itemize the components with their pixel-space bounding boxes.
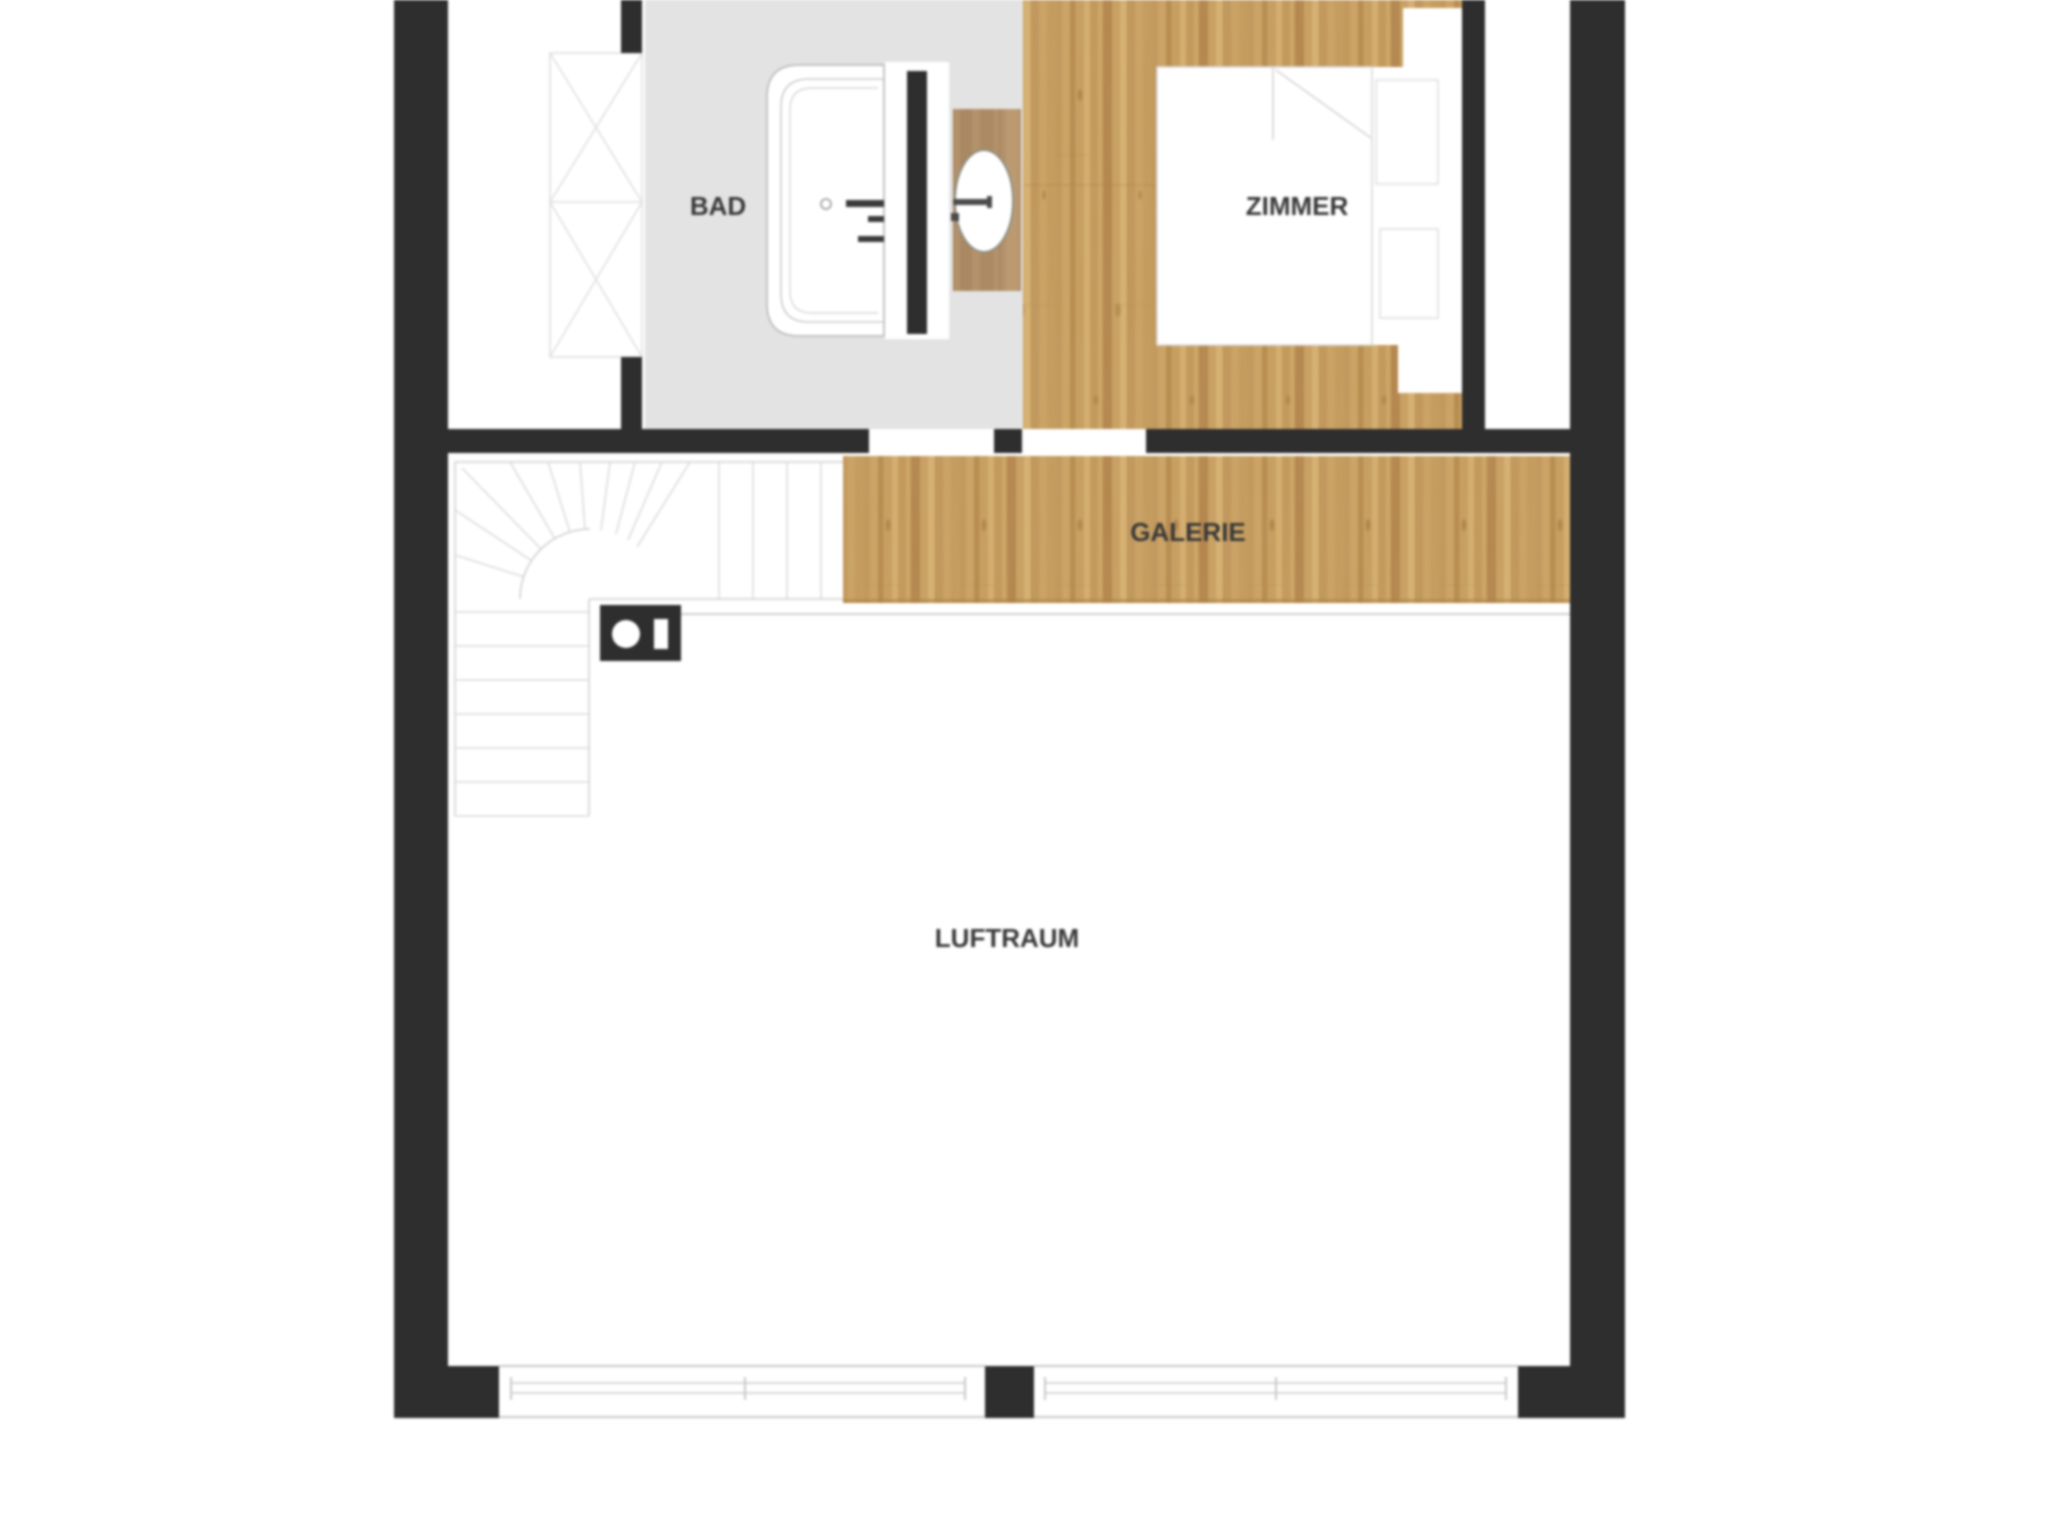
svg-text:ZIMMER: ZIMMER xyxy=(1246,191,1349,221)
svg-text:GALERIE: GALERIE xyxy=(1130,517,1246,547)
svg-text:LUFTRAUM: LUFTRAUM xyxy=(935,923,1079,953)
svg-text:BAD: BAD xyxy=(690,191,746,221)
